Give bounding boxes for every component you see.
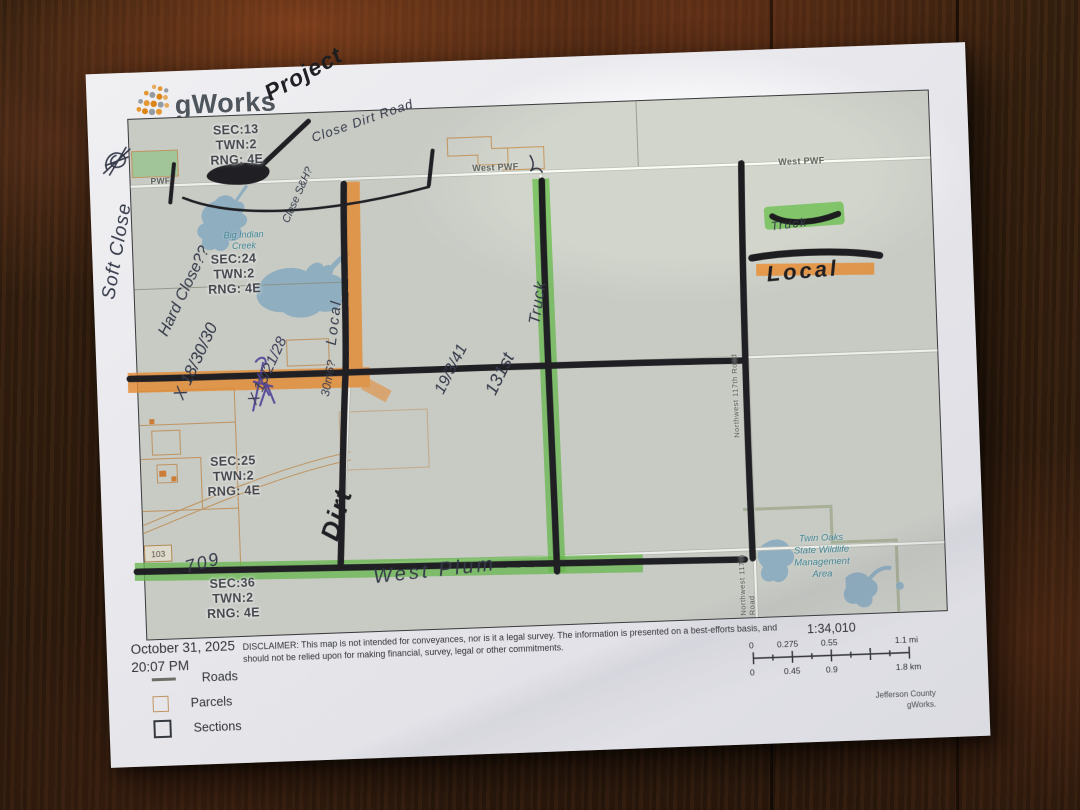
parcels-swatch-icon <box>152 696 169 713</box>
legend-roads: Roads <box>152 669 239 686</box>
highway-shield-103: 103 <box>144 545 173 563</box>
scale-mi-2: 0.55 <box>821 637 838 648</box>
scale-km-1: 0.45 <box>784 666 801 677</box>
area-label-twin-oaks: Twin OaksState Wildlife ManagementArea <box>771 531 873 582</box>
scale-km-2: 0.9 <box>826 664 838 674</box>
legend-parcels: Parcels <box>152 693 232 712</box>
roads-swatch-icon <box>152 677 176 681</box>
section-label-36: SEC:36TWN:2RNG: 4E <box>194 575 272 622</box>
printed-map-paper: gWorks <box>86 42 991 768</box>
annotation-project: Project <box>260 42 347 107</box>
scale-mi-1: 0.275 <box>777 639 799 650</box>
legend-parcels-label: Parcels <box>190 694 232 710</box>
annotation-soft-close: Soft Close <box>98 201 136 301</box>
section-label-25: SEC:25TWN:2RNG: 4E <box>195 453 273 500</box>
wood-table-photo: gWorks <box>0 0 1080 810</box>
road-label-nw-117th-2: Northwest 117th Road <box>736 535 757 616</box>
gworks-logo-dots-icon <box>132 81 175 119</box>
gworks-logo: gWorks <box>132 77 277 118</box>
scale-km-3: 1.8 km <box>896 661 922 672</box>
legend-roads-label: Roads <box>202 669 239 684</box>
scale-mi-0: 0 <box>749 640 754 650</box>
road-label-west-pwf-2: West PWF <box>778 155 825 167</box>
road-label-pwf: PWF <box>150 175 170 186</box>
scale-mi-3: 1.1 mi <box>895 634 919 645</box>
legend-sections: Sections <box>153 717 242 738</box>
map-attribution: Jefferson County gWorks. <box>786 688 937 716</box>
water-label-big-indian-creek: Big IndianCreek <box>208 228 279 253</box>
road-label-west-pwf-1: West PWF <box>472 162 519 174</box>
scale-km-0: 0 <box>750 667 755 677</box>
sections-swatch-icon <box>153 720 172 739</box>
scribbled-out-note <box>100 138 142 183</box>
section-label-13: SEC:13TWN:2RNG: 4E <box>197 122 275 169</box>
map-canvas: SEC:13TWN:2RNG: 4E SEC:24TWN:2RNG: 4E SE… <box>127 89 948 640</box>
legend-sections-label: Sections <box>193 719 241 735</box>
parcel-buildings <box>149 418 176 482</box>
scale-bar: 0 0.275 0.55 1.1 mi 0 0.45 0.9 1.8 km <box>749 634 926 680</box>
